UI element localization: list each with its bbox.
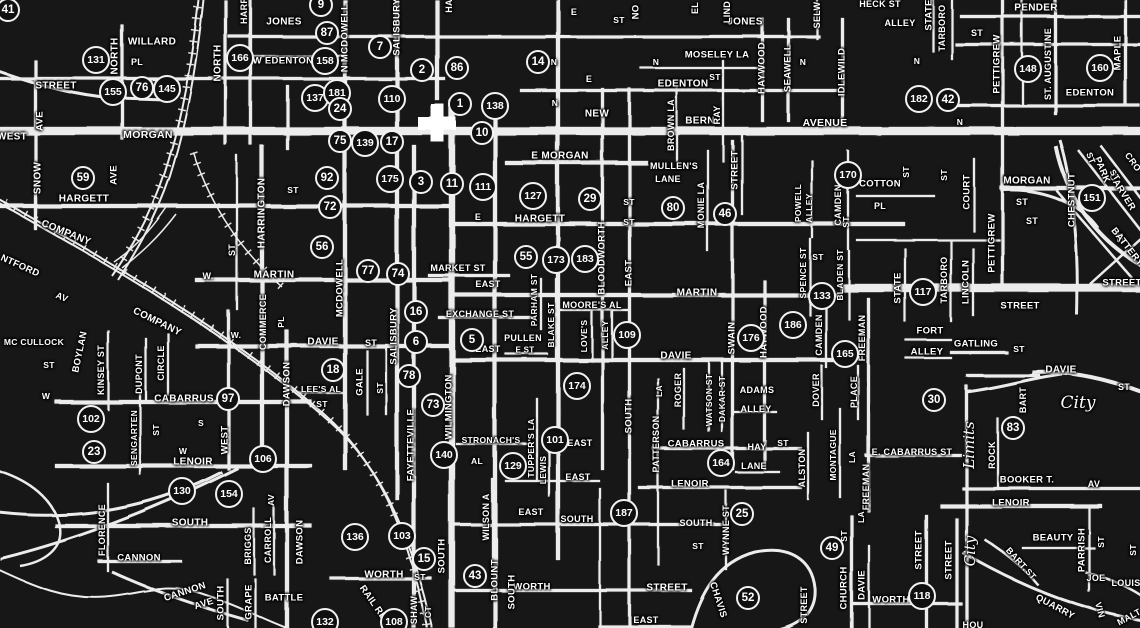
street-label: SOUTH: [216, 586, 227, 621]
street-label: ST: [151, 424, 161, 435]
location-marker-25: 25: [730, 502, 754, 526]
street-vertical: [676, 88, 678, 162]
street-label: JONES: [266, 17, 301, 28]
location-marker-140: 140: [430, 441, 458, 469]
street-label: HAY: [747, 442, 766, 452]
location-marker-164: 164: [707, 449, 735, 477]
street-vertical: [591, 310, 593, 362]
street-label: ST: [1096, 536, 1106, 547]
street-label: ALLEY: [740, 404, 771, 414]
street-label: EAST: [565, 472, 590, 482]
location-marker-74: 74: [386, 262, 410, 286]
street-vertical: [273, 505, 275, 575]
street-vertical: [950, 240, 952, 322]
street-label: City: [961, 536, 979, 567]
street-vertical: [366, 350, 368, 415]
street-label: PL: [276, 316, 286, 327]
location-marker-49: 49: [820, 536, 844, 560]
street-label: CABARRUS: [668, 439, 725, 450]
street-label: PLACE: [849, 376, 859, 408]
street-label: MORGAN: [1003, 176, 1050, 187]
street-label: ST: [709, 72, 720, 82]
street-label: W.: [231, 330, 242, 340]
street-label: TARBORO: [939, 257, 949, 304]
street-label: ST: [414, 572, 425, 582]
street-label: WORTH: [872, 595, 909, 606]
street-horizontal: [950, 351, 1008, 354]
street-vertical: [951, 0, 953, 60]
street-label: EAST: [518, 507, 543, 517]
street-label: LANE: [741, 461, 767, 471]
street-label: DAVIE: [307, 337, 338, 348]
street-label: ST: [623, 217, 634, 227]
location-marker-10: 10: [470, 121, 494, 145]
location-marker-102: 102: [77, 405, 105, 433]
street-label: NORTH: [110, 37, 121, 74]
location-marker-75: 75: [328, 129, 352, 153]
street-label: SELW: [812, 2, 822, 29]
street-label: S: [198, 418, 204, 428]
street-vertical: [825, 300, 827, 368]
location-marker-14: 14: [526, 50, 550, 74]
location-marker-30: 30: [922, 388, 946, 412]
location-marker-56: 56: [310, 235, 334, 259]
location-marker-5: 5: [460, 328, 484, 352]
street-horizontal: [856, 195, 935, 197]
location-marker-24: 24: [328, 97, 352, 121]
street-label: ST: [841, 216, 851, 227]
street-label: SPENCE ST: [798, 248, 808, 299]
street-label: LA: [654, 385, 664, 397]
street-label: STRONACH'S: [462, 435, 521, 445]
street-label: EAST: [567, 438, 592, 448]
location-marker-136: 136: [341, 523, 369, 551]
street-label: ST: [43, 360, 54, 370]
street-label: DAVIE: [1045, 365, 1076, 376]
street-horizontal: [450, 293, 840, 297]
street-label: BLADEN ST: [835, 249, 845, 300]
street-label: SEAWELL: [783, 44, 794, 92]
street-label: ST: [1118, 382, 1130, 392]
street-label: ST: [316, 399, 327, 409]
street-label: ST. AUGUSTINE: [1043, 28, 1053, 100]
location-marker-77: 77: [356, 259, 380, 283]
street-label: MULLEN'S: [650, 161, 698, 171]
street-label: EXCHANGE ST: [446, 309, 514, 319]
street-label: ROGER: [673, 373, 683, 408]
street-label: SWAIN: [727, 322, 738, 355]
location-marker-187: 187: [610, 499, 638, 527]
street-label: W EDENTON: [253, 56, 314, 67]
location-marker-175: 175: [376, 165, 404, 193]
street-label: CARROLL: [263, 517, 273, 563]
street-label: LEE'S AL: [301, 384, 341, 394]
street-label: ST: [287, 185, 298, 195]
street-label: MOORE'S AL: [562, 300, 621, 310]
street-vertical: [224, 0, 227, 145]
street-vertical: [628, 88, 631, 628]
street-label: LINCOLN: [961, 260, 972, 304]
street-label: COTTON: [859, 179, 901, 190]
street-label: DUPONT: [134, 354, 144, 394]
street-label: WEST: [0, 132, 27, 143]
street-vertical: [139, 393, 141, 475]
street-label: EL: [690, 2, 700, 14]
location-marker-72: 72: [318, 195, 342, 219]
street-vertical: [807, 432, 809, 500]
street-label: LOUIS: [1111, 578, 1140, 588]
street-label: BLAKE ST: [546, 303, 556, 348]
location-marker-7: 7: [368, 35, 392, 59]
location-marker-166: 166: [226, 44, 254, 72]
street-vertical: [493, 95, 497, 628]
location-marker-165: 165: [831, 340, 859, 368]
location-marker-132: 132: [311, 608, 339, 628]
street-vertical: [236, 155, 238, 310]
location-marker-55: 55: [514, 245, 538, 269]
street-label: JOE: [1087, 573, 1106, 583]
location-marker-148: 148: [1014, 55, 1042, 83]
street-label: NORTH: [213, 44, 224, 81]
location-marker-17: 17: [380, 130, 404, 154]
raleigh-street-map: WILLARDPLJONESW EDENTONSTREETMORGANWESTN…: [0, 0, 1140, 628]
street-vertical: [540, 278, 542, 330]
location-marker-129: 129: [499, 452, 527, 480]
street-label: W.: [202, 271, 213, 281]
street-label: ST: [1016, 197, 1028, 207]
street-label: DAVIE: [660, 351, 691, 362]
curved-road: [966, 374, 1062, 392]
street-label: MOSELEY LA: [685, 50, 750, 61]
location-marker-15: 15: [412, 547, 436, 571]
street-label: KINSEY ST: [96, 345, 106, 395]
location-marker-76: 76: [130, 76, 154, 100]
street-label: CHURCH: [839, 567, 850, 610]
street-label: N: [800, 57, 806, 67]
street-label: N: [653, 57, 659, 67]
street-label: TUPPER'S LA: [526, 418, 536, 477]
location-marker-173: 173: [542, 246, 570, 274]
street-label: ALLEY: [600, 320, 610, 349]
street-label: POWELL: [793, 184, 803, 222]
location-marker-87: 87: [315, 21, 339, 45]
street-label: ST: [613, 15, 624, 25]
street-label: ST: [692, 541, 703, 551]
street-label: MCDOWELL: [335, 259, 346, 317]
street-label: HARRI: [239, 0, 249, 24]
street-label: CHESTNUT: [1067, 173, 1078, 227]
street-label: CANNON: [117, 553, 161, 564]
street-horizontal: [735, 471, 780, 473]
street-label: EAST: [633, 615, 658, 625]
street-label: BLOUNT: [490, 559, 501, 600]
street-horizontal: [960, 15, 1140, 18]
street-label: CABARRUS: [154, 394, 214, 405]
street-label: DOVER: [811, 373, 821, 407]
street-vertical: [395, 0, 399, 500]
street-label: City: [1061, 393, 1096, 413]
street-vertical: [385, 348, 387, 415]
street-label: AVE: [109, 165, 120, 185]
street-label: ST: [939, 169, 949, 180]
location-marker-170: 170: [834, 161, 862, 189]
street-vertical: [107, 483, 109, 572]
street-label: ST: [1128, 544, 1138, 555]
location-marker-83: 83: [1001, 416, 1025, 440]
street-label: E: [475, 212, 481, 222]
location-marker-111: 111: [469, 173, 497, 201]
street-vertical: [253, 508, 255, 575]
location-marker-139: 139: [351, 129, 379, 157]
street-label: FORT: [916, 326, 943, 337]
street-label: HARGETT: [515, 214, 565, 225]
location-marker-43: 43: [463, 564, 487, 588]
street-label: PULLEN: [504, 333, 542, 343]
location-marker-23: 23: [82, 440, 106, 464]
street-horizontal: [0, 204, 450, 208]
street-vertical: [997, 418, 999, 490]
street-label: STREET: [914, 530, 925, 569]
street-vertical: [925, 515, 928, 628]
street-label: WILSON A: [481, 493, 491, 540]
location-marker-118: 118: [908, 582, 936, 610]
street-label: NO: [631, 5, 642, 20]
location-marker-110: 110: [378, 85, 406, 113]
street-label: LEWIS: [538, 456, 548, 484]
street-label: ST: [901, 166, 911, 177]
location-marker-52: 52: [736, 586, 760, 610]
street-label: MC CULLOCK: [4, 337, 64, 347]
street-label: AVE: [35, 111, 46, 131]
street-label: SOUTH: [172, 518, 209, 529]
street-label: COMMERCE: [258, 294, 268, 350]
street-label: LANE: [655, 174, 681, 184]
street-label: DAKAR ST: [717, 376, 727, 422]
location-marker-101: 101: [541, 426, 569, 454]
location-marker-78: 78: [397, 364, 421, 388]
street-label: DAWSON: [282, 362, 293, 407]
street-label: HARGETT: [59, 194, 109, 205]
location-marker-130: 130: [168, 477, 196, 505]
street-label: STREET: [35, 81, 76, 92]
street-horizontal: [638, 486, 802, 489]
street-label: Limits: [960, 421, 978, 469]
street-label: WATSON ST: [704, 374, 714, 427]
street-label: CAMDEN: [814, 314, 824, 355]
street-label: WORTH: [364, 570, 403, 581]
location-marker-103: 103: [388, 522, 416, 550]
street-vertical: [167, 333, 169, 396]
street-label: MAPLE: [1113, 36, 1124, 71]
street-horizontal: [452, 358, 845, 362]
street-vertical: [839, 408, 841, 498]
street-label: FAYETTEVILLE: [406, 409, 417, 481]
street-label: CT: [423, 606, 433, 618]
street-vertical: [435, 0, 439, 100]
street-vertical: [1021, 0, 1023, 105]
street-label: W: [179, 446, 187, 456]
location-marker-182: 182: [905, 85, 933, 113]
street-label: PETTIGREW: [987, 213, 998, 272]
street-label: ALSTON: [797, 449, 807, 488]
location-marker-80: 80: [661, 196, 685, 220]
location-marker-174: 174: [563, 372, 591, 400]
location-marker-183: 183: [571, 245, 599, 273]
street-label: BART: [1018, 387, 1028, 413]
location-marker-131: 131: [82, 46, 110, 74]
street-label: STREET: [799, 586, 809, 623]
street-label: N: [552, 98, 558, 108]
street-label: GATLING: [954, 339, 998, 350]
street-horizontal: [962, 487, 1140, 490]
street-label: EDENTON: [658, 79, 709, 90]
street-vertical: [741, 135, 743, 215]
street-label: ST: [1013, 344, 1024, 354]
street-label: EDENTON: [1066, 88, 1114, 99]
street-label: ST: [1026, 216, 1038, 226]
street-label: ALLEY: [884, 18, 915, 28]
street-label: JONES: [727, 17, 762, 28]
street-vertical: [904, 248, 906, 322]
street-horizontal: [966, 374, 1040, 377]
street-label: ROCK: [987, 441, 997, 469]
street-vertical: [973, 158, 975, 232]
street-label: WORTH: [513, 582, 550, 593]
street-label: LENOIR: [173, 457, 213, 468]
street-label: E. CABARRUS ST: [872, 447, 953, 457]
street-label: SNOW: [33, 162, 44, 194]
location-marker-108: 108: [380, 608, 408, 628]
street-label: PETTIGREW: [992, 34, 1003, 93]
street-label: GALE: [355, 368, 366, 396]
street-label: AV: [1088, 479, 1100, 489]
street-label: SOUTH: [680, 518, 713, 528]
location-marker-145: 145: [153, 75, 181, 103]
location-marker-29: 29: [578, 187, 602, 211]
location-marker-186: 186: [779, 311, 807, 339]
street-label: BATTLE: [265, 593, 304, 604]
street-label: N: [957, 117, 963, 127]
location-marker-155: 155: [99, 78, 127, 106]
street-horizontal: [640, 67, 765, 69]
street-label: AV: [266, 494, 276, 506]
street-label: STATE: [924, 0, 935, 31]
street-label: MONTAGUE: [828, 429, 838, 480]
street-label: MORGAN: [123, 129, 173, 141]
street-label: ST: [227, 244, 237, 256]
street-label: ALLEY: [804, 193, 814, 222]
location-marker-46: 46: [713, 202, 737, 226]
street-label: E ST: [516, 346, 535, 355]
street-label: SOUTH: [624, 399, 635, 434]
street-label: E: [571, 7, 577, 17]
street-label: HARRINGTON: [257, 178, 268, 249]
location-marker-154: 154: [215, 480, 243, 508]
street-vertical: [599, 488, 601, 628]
street-label: STREET: [1000, 301, 1039, 312]
street-label: LA: [847, 451, 857, 463]
street-vertical: [850, 515, 853, 628]
street-horizontal: [950, 104, 1140, 107]
street-label: SHAW: [409, 596, 419, 624]
street-label: HAYWOOD: [757, 42, 768, 94]
street-label: N: [551, 57, 557, 67]
location-marker-16: 16: [404, 300, 428, 324]
street-label: SOUTH: [561, 514, 594, 524]
street-label: AL: [471, 456, 483, 466]
street-label: PARRISH: [1077, 528, 1088, 572]
street-label: N: [914, 56, 920, 66]
street-label: SOUTH: [507, 575, 518, 610]
street-label: W: [42, 391, 50, 401]
street-vertical: [107, 330, 109, 410]
street-label: WEST: [220, 426, 231, 455]
street-label: PL: [874, 201, 886, 211]
street-label: PENDER: [1014, 3, 1057, 14]
street-vertical: [145, 338, 147, 400]
street-label: LA: [856, 511, 866, 523]
street-horizontal: [840, 284, 1140, 292]
street-label: SALISBURY: [392, 0, 403, 56]
street-label: RAY: [712, 105, 722, 124]
location-marker-73: 73: [421, 393, 445, 417]
location-marker-86: 86: [445, 56, 469, 80]
street-label: ADAMS: [740, 385, 775, 395]
street-label: WILMINGTON: [444, 374, 455, 439]
street-label: LENOIR: [992, 498, 1030, 509]
street-label: FLORENCE: [97, 504, 107, 556]
street-label: STATE: [893, 272, 904, 303]
street-label: STREET: [646, 583, 687, 594]
street-label: LENOIR: [671, 479, 709, 490]
street-label: TARBORO: [937, 5, 947, 52]
location-marker-42: 42: [936, 88, 960, 112]
location-marker-176: 176: [737, 324, 765, 352]
street-label: BEAUTY: [1033, 533, 1074, 544]
location-marker-106: 106: [249, 445, 277, 473]
street-label: BERN: [685, 116, 715, 127]
street-label: MARTIN: [254, 270, 295, 281]
street-horizontal: [905, 339, 952, 341]
street-label: ST: [777, 438, 788, 448]
location-marker-6: 6: [404, 330, 428, 354]
street-label: N MCDOWELL: [340, 4, 351, 72]
location-marker-18: 18: [321, 358, 345, 382]
street-label: DAVIE: [857, 570, 868, 600]
location-marker-59: 59: [71, 166, 95, 190]
street-label: ST: [623, 197, 634, 207]
location-marker-97: 97: [216, 387, 240, 411]
street-label: GRAPE: [244, 584, 255, 619]
location-marker-2: 2: [410, 58, 434, 82]
street-vertical: [657, 492, 659, 565]
street-label: BROWN LA: [666, 99, 676, 151]
street-label: BRIGGS: [243, 527, 253, 564]
street-label: EAST: [475, 279, 500, 289]
street-horizontal: [856, 239, 1000, 241]
street-label: COURT: [962, 174, 973, 209]
street-label: ST: [971, 28, 983, 38]
street-label: DAWSON: [295, 520, 306, 565]
location-marker-1: 1: [448, 92, 472, 116]
street-label: ST: [375, 382, 385, 393]
street-label: AVENUE: [803, 117, 848, 129]
street-vertical: [1054, 0, 1057, 115]
street-label: SENGARTEN: [129, 410, 139, 466]
street-label: PL: [131, 57, 143, 67]
street-label: STREET: [1102, 278, 1140, 289]
street-vertical: [868, 545, 870, 628]
